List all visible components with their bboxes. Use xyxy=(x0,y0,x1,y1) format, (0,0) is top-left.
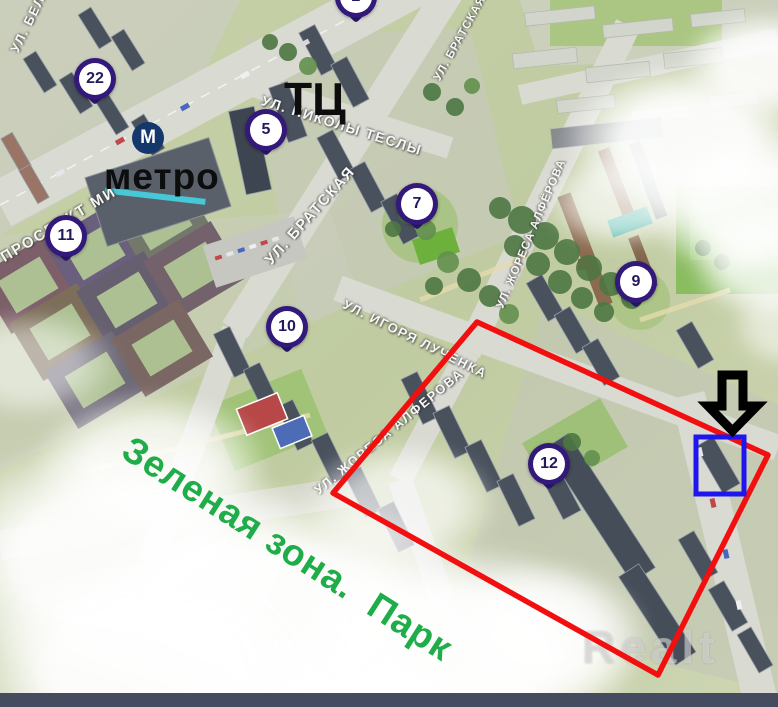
pin-circle: 9 xyxy=(615,261,657,303)
pin-number: 12 xyxy=(540,456,558,472)
pin-number: 22 xyxy=(86,71,104,87)
pin-inner: 2 xyxy=(340,0,372,13)
pin-inner: 5 xyxy=(250,114,282,146)
pin-number: 5 xyxy=(262,122,271,138)
metro-station-icon[interactable]: М xyxy=(132,122,164,154)
map-marker-11[interactable]: 11 xyxy=(45,215,87,257)
metro-label: метро xyxy=(104,158,220,195)
pin-number: 9 xyxy=(632,274,641,290)
map-marker-5[interactable]: 5 xyxy=(245,109,287,151)
pin-circle: 7 xyxy=(396,183,438,225)
pin-circle: 5 xyxy=(245,109,287,151)
pin-number: 7 xyxy=(413,196,422,212)
pin-circle: 22 xyxy=(74,58,116,100)
pin-inner: 10 xyxy=(271,311,303,343)
pin-number: 11 xyxy=(58,228,75,244)
map-marker-12[interactable]: 12 xyxy=(528,443,570,485)
pin-circle: 11 xyxy=(45,215,87,257)
metro-symbol: М xyxy=(140,127,156,149)
map-marker-9[interactable]: 9 xyxy=(615,261,657,303)
map-marker-10[interactable]: 10 xyxy=(266,306,308,348)
pin-number: 2 xyxy=(352,0,361,5)
map-marker-2[interactable]: 2 xyxy=(335,0,377,18)
realt-watermark: Realt xyxy=(582,624,719,670)
pin-inner: 11 xyxy=(50,220,82,252)
mall-label: ТЦ xyxy=(284,76,346,122)
pin-circle: 12 xyxy=(528,443,570,485)
map-marker-7[interactable]: 7 xyxy=(396,183,438,225)
pin-circle: 10 xyxy=(266,306,308,348)
pin-number: 10 xyxy=(278,319,296,335)
pin-inner: 12 xyxy=(533,448,565,480)
pin-inner: 9 xyxy=(620,266,652,298)
aerial-map-screenshot: УЛ. БЕЛ ПРОСПЕКТ МИ УЛ. БРАТСКАЯ УЛ. НИК… xyxy=(0,0,778,707)
pin-inner: 22 xyxy=(79,63,111,95)
pin-inner: 7 xyxy=(401,188,433,220)
bottom-bar xyxy=(0,693,778,707)
map-marker-22[interactable]: 22 xyxy=(74,58,116,100)
pin-circle: 2 xyxy=(335,0,377,18)
